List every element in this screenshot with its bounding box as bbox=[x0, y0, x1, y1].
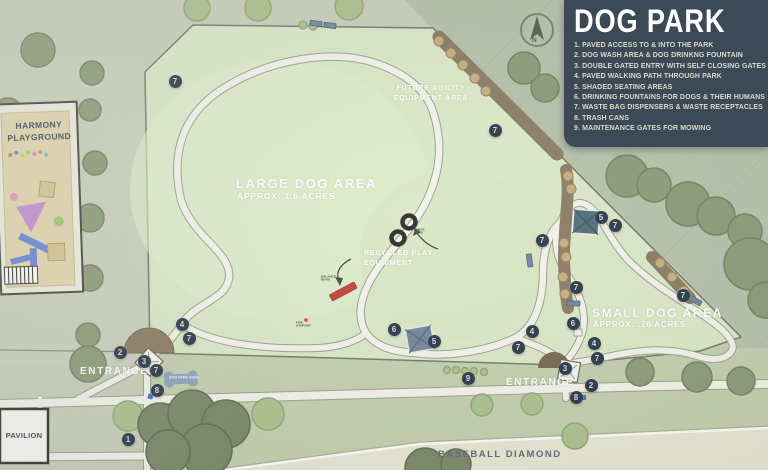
legend-item: 3. DOUBLE GATED ENTRY WITH SELF CLOSING … bbox=[574, 62, 760, 72]
picnic-table bbox=[574, 329, 582, 336]
small-dog-area-title: SMALL DOG AREA bbox=[592, 306, 723, 320]
legend-item: 2. DOG WASH AREA & DOG DRINKNG FOUNTAIN bbox=[574, 51, 760, 61]
map-marker: 1 bbox=[122, 433, 135, 446]
harmony-playground-label: HARMONY PLAYGROUND bbox=[4, 118, 75, 144]
legend-title: DOG PARK bbox=[574, 5, 732, 39]
map-marker: 3 bbox=[559, 362, 572, 375]
large-dog-area-title: LARGE DOG AREA bbox=[236, 176, 377, 191]
pavilion-label: PAVILION bbox=[2, 431, 46, 440]
legend-panel: DOG PARK 1. PAVED ACCESS TO & INTO THE P… bbox=[564, 0, 768, 147]
map-marker: 5 bbox=[595, 211, 608, 224]
balance-beam-label: BALANCE BEAM bbox=[321, 275, 336, 281]
legend-list: 1. PAVED ACCESS TO & INTO THE PARK2. DOG… bbox=[574, 41, 760, 135]
map-marker: 8 bbox=[151, 384, 164, 397]
legend-item: 9. MAINTENANCE GATES FOR MOWING bbox=[574, 124, 760, 134]
map-marker: 3 bbox=[138, 355, 151, 368]
large-tires-label: LARGE TIRES bbox=[414, 228, 425, 234]
map-marker: 9 bbox=[462, 372, 475, 385]
map-marker: 7 bbox=[150, 364, 163, 377]
map-marker: 6 bbox=[388, 323, 401, 336]
large-dog-area-acreage: APPROX: 1.6 ACRES bbox=[237, 191, 335, 201]
future-agility-area-label: FUTURE AGILITY EQUIPMENT AREA bbox=[386, 84, 476, 104]
map-marker: 4 bbox=[526, 325, 539, 338]
map-marker: 7 bbox=[570, 281, 583, 294]
legend-item: 1. PAVED ACCESS TO & INTO THE PARK bbox=[574, 41, 760, 51]
map-marker: 7 bbox=[609, 219, 622, 232]
map-marker: 4 bbox=[588, 337, 601, 350]
map-marker: 7 bbox=[536, 234, 549, 247]
map-marker: 7 bbox=[591, 352, 604, 365]
map-marker: 5 bbox=[428, 335, 441, 348]
map-marker: 7 bbox=[169, 75, 182, 88]
map-marker: 2 bbox=[114, 346, 127, 359]
map-marker: 7 bbox=[489, 124, 502, 137]
legend-item: 4. PAVED WALKING PATH THROUGH PARK bbox=[574, 72, 760, 82]
map-marker: 6 bbox=[567, 317, 580, 330]
legend-item: 8. TRASH CANS bbox=[574, 114, 760, 124]
entrance-west-label: ENTRANCE bbox=[80, 366, 148, 377]
legend-item: 5. SHADED SEATING AREAS bbox=[574, 83, 760, 93]
fire-hydrant-label: FIRE HYDRANT bbox=[296, 321, 311, 327]
dog-park-sign-label: DOG PARK SIGN bbox=[169, 376, 198, 380]
recycled-play-equipment-label: RECYCLED PLAY EQUIPMENT bbox=[364, 249, 433, 269]
baseball-diamond-label: BASEBALL DIAMOND bbox=[438, 449, 562, 460]
map-marker: 2 bbox=[585, 379, 598, 392]
legend-item: 7. WASTE BAG DISPENSERS & WASTE RECEPTAC… bbox=[574, 103, 760, 113]
map-marker: 7 bbox=[677, 289, 690, 302]
compass-north-label: N bbox=[532, 37, 538, 44]
map-marker: 4 bbox=[176, 318, 189, 331]
map-marker: 8 bbox=[570, 391, 583, 404]
legend-item: 6. DRINKING FOUNTAINS FOR DOGS & THEIR H… bbox=[574, 93, 760, 103]
dog-park-map-poster: LARGE DOG AREA APPROX: 1.6 ACRES SMALL D… bbox=[0, 0, 768, 470]
entrance-south-label: ENTRANCE bbox=[506, 377, 574, 388]
map-marker: 7 bbox=[183, 332, 196, 345]
small-dog-area-acreage: APPROX: .26 ACRES bbox=[593, 320, 686, 329]
map-marker: 7 bbox=[512, 341, 525, 354]
